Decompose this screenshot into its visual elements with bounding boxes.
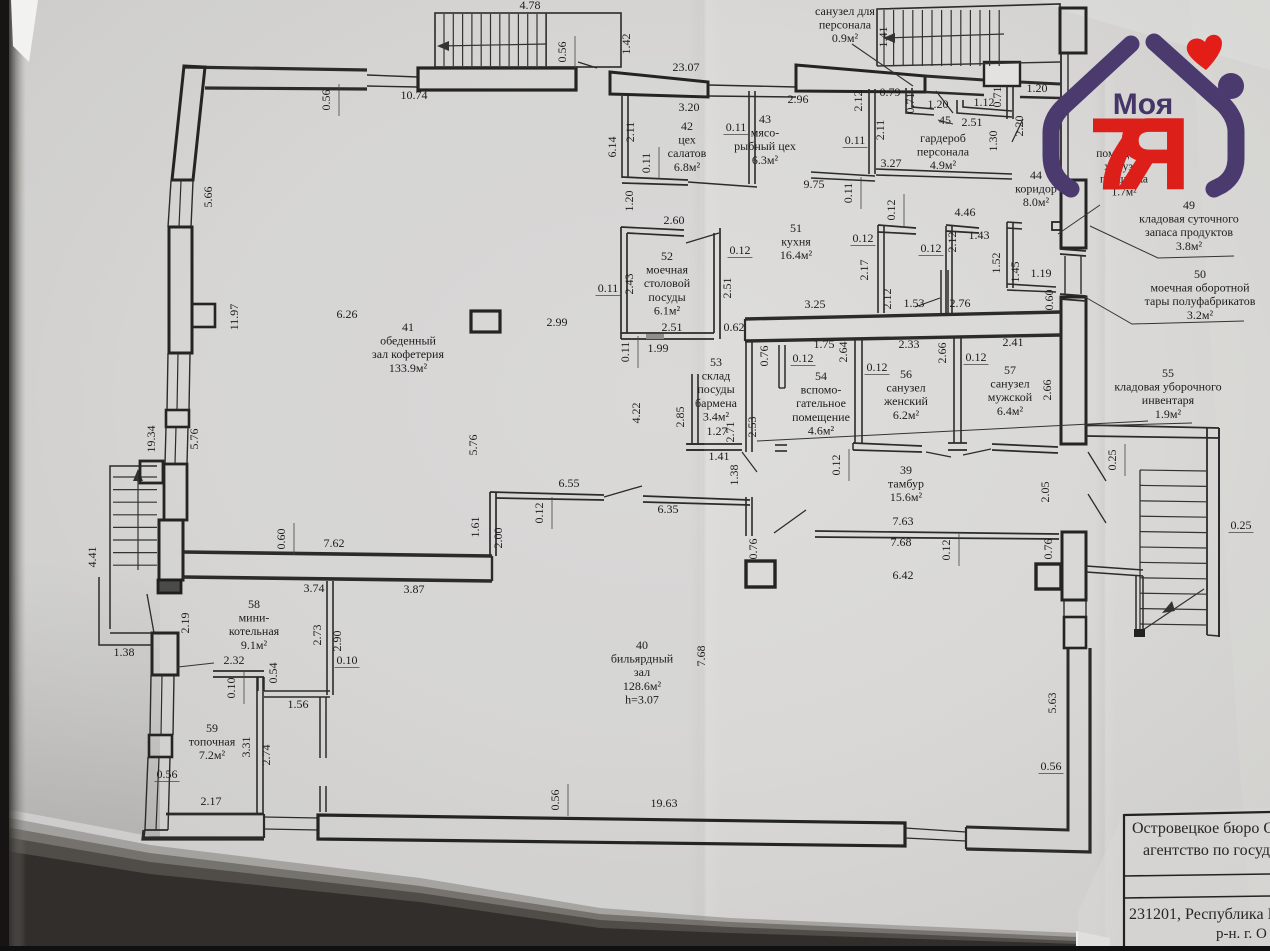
svg-text:0.10: 0.10 xyxy=(224,678,238,699)
svg-text:1.20: 1.20 xyxy=(622,191,636,212)
svg-text:4.41: 4.41 xyxy=(85,547,99,568)
svg-text:бармена: бармена xyxy=(695,396,738,410)
svg-text:0.12: 0.12 xyxy=(939,540,953,561)
svg-text:6.14: 6.14 xyxy=(605,137,619,158)
svg-text:0.71: 0.71 xyxy=(903,93,917,114)
svg-text:41: 41 xyxy=(402,320,414,334)
svg-text:44: 44 xyxy=(1030,168,1042,182)
svg-text:тары полуфабрикатов: тары полуфабрикатов xyxy=(1145,294,1256,308)
svg-text:посуды: посуды xyxy=(648,290,685,304)
svg-text:19.34: 19.34 xyxy=(144,426,158,453)
svg-text:2.76: 2.76 xyxy=(950,296,971,310)
svg-text:тамбур: тамбур xyxy=(888,477,924,491)
svg-text:7.63: 7.63 xyxy=(893,514,914,528)
svg-text:3.87: 3.87 xyxy=(404,582,425,596)
svg-text:2.11: 2.11 xyxy=(873,120,887,141)
svg-text:1.41: 1.41 xyxy=(709,449,730,463)
svg-text:0.56: 0.56 xyxy=(319,90,333,111)
svg-text:1.43: 1.43 xyxy=(969,228,990,242)
svg-text:4.9м²: 4.9м² xyxy=(930,158,957,172)
svg-text:11.97: 11.97 xyxy=(227,304,241,331)
svg-text:гательное: гательное xyxy=(796,396,846,410)
svg-text:2.66: 2.66 xyxy=(1040,380,1054,401)
svg-text:4.78: 4.78 xyxy=(520,0,541,12)
svg-text:6.2м²: 6.2м² xyxy=(893,408,920,422)
svg-text:зал: зал xyxy=(634,665,650,679)
svg-text:52: 52 xyxy=(661,249,673,263)
svg-text:1.99: 1.99 xyxy=(648,341,669,355)
svg-text:3.74: 3.74 xyxy=(304,581,325,595)
svg-text:7.68: 7.68 xyxy=(891,535,912,549)
svg-text:0.76: 0.76 xyxy=(746,539,760,560)
svg-text:2.11: 2.11 xyxy=(623,122,637,143)
svg-text:9.75: 9.75 xyxy=(804,177,825,191)
svg-text:6.26: 6.26 xyxy=(337,307,358,321)
svg-text:56: 56 xyxy=(900,367,912,381)
svg-text:0.11: 0.11 xyxy=(845,133,866,147)
svg-text:2.64: 2.64 xyxy=(836,342,850,363)
svg-text:0.56: 0.56 xyxy=(1041,759,1062,773)
svg-text:гардероб: гардероб xyxy=(920,131,966,145)
svg-text:40: 40 xyxy=(636,638,648,652)
svg-text:6.8м²: 6.8м² xyxy=(674,160,701,174)
svg-text:9.1м²: 9.1м² xyxy=(241,638,268,652)
svg-text:2.51: 2.51 xyxy=(662,320,683,334)
svg-text:помещение: помещение xyxy=(792,410,850,424)
svg-text:рыбный цех: рыбный цех xyxy=(734,139,796,153)
svg-text:5.66: 5.66 xyxy=(201,187,215,208)
svg-text:2.66: 2.66 xyxy=(935,343,949,364)
svg-text:3.8м²: 3.8м² xyxy=(1176,239,1203,253)
svg-text:2.60: 2.60 xyxy=(664,213,685,227)
svg-text:0.54: 0.54 xyxy=(266,663,280,684)
svg-text:2.99: 2.99 xyxy=(547,315,568,329)
svg-text:р-н. г. О: р-н. г. О xyxy=(1216,926,1267,942)
svg-text:6.55: 6.55 xyxy=(559,476,580,490)
svg-text:0.71: 0.71 xyxy=(990,87,1004,108)
svg-text:1.19: 1.19 xyxy=(1031,266,1052,280)
svg-text:склад: склад xyxy=(702,369,731,383)
svg-text:2.12: 2.12 xyxy=(851,91,865,112)
svg-text:8.0м²: 8.0м² xyxy=(1023,195,1050,209)
svg-text:128.6м²: 128.6м² xyxy=(623,679,662,693)
svg-text:4.6м²: 4.6м² xyxy=(808,423,835,437)
svg-text:2.17: 2.17 xyxy=(201,794,222,808)
svg-text:h=3.07: h=3.07 xyxy=(625,692,659,706)
svg-text:котельная: котельная xyxy=(229,624,280,638)
svg-text:1.38: 1.38 xyxy=(727,465,741,486)
svg-text:2.00: 2.00 xyxy=(491,528,505,549)
svg-text:2.51: 2.51 xyxy=(962,115,983,129)
svg-text:0.12: 0.12 xyxy=(532,503,546,524)
svg-text:0.56: 0.56 xyxy=(548,790,562,811)
svg-text:3.31: 3.31 xyxy=(239,737,253,758)
svg-text:58: 58 xyxy=(248,597,260,611)
svg-text:0.11: 0.11 xyxy=(618,342,632,363)
svg-text:мясо-: мясо- xyxy=(751,126,779,140)
svg-text:1.75: 1.75 xyxy=(814,337,835,351)
svg-text:0.56: 0.56 xyxy=(157,767,178,781)
svg-text:кладовая суточного: кладовая суточного xyxy=(1139,212,1239,226)
svg-text:0.25: 0.25 xyxy=(1231,518,1252,532)
svg-text:43: 43 xyxy=(759,112,771,126)
svg-text:персонала: персонала xyxy=(917,145,970,159)
svg-text:7.62: 7.62 xyxy=(324,536,345,550)
svg-text:2.74: 2.74 xyxy=(259,745,273,766)
svg-text:0.79: 0.79 xyxy=(880,85,901,99)
svg-text:2.17: 2.17 xyxy=(857,260,871,281)
svg-text:2.51: 2.51 xyxy=(720,278,734,299)
svg-text:2.20: 2.20 xyxy=(1012,116,1026,137)
svg-text:мужской: мужской xyxy=(988,390,1033,404)
svg-text:0.11: 0.11 xyxy=(841,183,855,204)
svg-text:15.6м²: 15.6м² xyxy=(890,490,923,504)
svg-text:1.42: 1.42 xyxy=(619,34,633,55)
svg-text:42: 42 xyxy=(681,119,693,133)
svg-text:0.76: 0.76 xyxy=(1041,539,1055,560)
svg-text:зал кофетерия: зал кофетерия xyxy=(372,347,444,361)
svg-text:2.05: 2.05 xyxy=(1038,482,1052,503)
svg-text:3.27: 3.27 xyxy=(881,156,902,170)
svg-text:0.76: 0.76 xyxy=(757,346,771,367)
svg-text:топочная: топочная xyxy=(189,735,236,749)
svg-text:2.33: 2.33 xyxy=(899,337,920,351)
svg-text:столовой: столовой xyxy=(644,276,691,290)
svg-text:2.19: 2.19 xyxy=(178,613,192,634)
svg-text:10.74: 10.74 xyxy=(401,88,428,102)
svg-text:0.62: 0.62 xyxy=(724,320,745,334)
svg-text:45: 45 xyxy=(939,113,951,127)
svg-text:обеденный: обеденный xyxy=(380,334,436,348)
svg-text:Островецкое бюро О: Островецкое бюро О xyxy=(1132,820,1270,837)
svg-text:57: 57 xyxy=(1004,363,1016,377)
svg-text:0.11: 0.11 xyxy=(598,281,619,295)
svg-text:2.90: 2.90 xyxy=(330,631,344,652)
svg-text:агентство по госуд: агентство по госуд xyxy=(1143,842,1270,859)
svg-text:0.60: 0.60 xyxy=(1042,290,1056,311)
svg-text:0.12: 0.12 xyxy=(853,231,874,245)
svg-text:133.9м²: 133.9м² xyxy=(389,361,428,375)
svg-text:женский: женский xyxy=(883,394,928,408)
svg-text:1.9м²: 1.9м² xyxy=(1155,407,1182,421)
svg-text:0.12: 0.12 xyxy=(829,455,843,476)
svg-text:59: 59 xyxy=(206,721,218,735)
svg-text:санузел: санузел xyxy=(886,381,925,395)
svg-text:0.25: 0.25 xyxy=(1105,450,1119,471)
svg-text:санузел: санузел xyxy=(990,377,1029,391)
svg-text:цех: цех xyxy=(678,133,696,147)
svg-text:посуды: посуды xyxy=(697,382,734,396)
svg-text:1.20: 1.20 xyxy=(928,97,949,111)
svg-text:6.42: 6.42 xyxy=(893,568,914,582)
svg-text:2.96: 2.96 xyxy=(788,92,809,106)
svg-text:кухня: кухня xyxy=(781,235,811,249)
svg-text:инвентаря: инвентаря xyxy=(1142,393,1195,407)
svg-text:7.68: 7.68 xyxy=(694,646,708,667)
svg-text:2.43: 2.43 xyxy=(622,274,636,295)
svg-text:3.4м²: 3.4м² xyxy=(703,409,730,423)
svg-text:2.73: 2.73 xyxy=(310,625,324,646)
svg-text:салатов: салатов xyxy=(668,146,707,160)
svg-text:0.12: 0.12 xyxy=(867,360,888,374)
svg-text:5.63: 5.63 xyxy=(1045,693,1059,714)
svg-text:5.76: 5.76 xyxy=(187,429,201,450)
svg-text:1.56: 1.56 xyxy=(288,697,309,711)
svg-text:кладовая уборочного: кладовая уборочного xyxy=(1114,380,1221,394)
svg-text:6.35: 6.35 xyxy=(658,502,679,516)
svg-text:2.71: 2.71 xyxy=(723,422,737,443)
svg-text:1.30: 1.30 xyxy=(986,131,1000,152)
svg-text:Я: Я xyxy=(1118,98,1189,209)
svg-text:2.85: 2.85 xyxy=(673,407,687,428)
svg-text:0.12: 0.12 xyxy=(884,200,898,221)
svg-text:0.12: 0.12 xyxy=(966,350,987,364)
svg-text:0.11: 0.11 xyxy=(726,120,747,134)
svg-text:53: 53 xyxy=(710,355,722,369)
svg-text:2.12: 2.12 xyxy=(945,232,959,253)
svg-text:6.4м²: 6.4м² xyxy=(997,404,1024,418)
svg-text:бильярдный: бильярдный xyxy=(611,652,674,666)
svg-text:16.4м²: 16.4м² xyxy=(780,248,813,262)
svg-text:санузел для: санузел для xyxy=(815,4,875,18)
svg-text:моечная оборотной: моечная оборотной xyxy=(1150,281,1250,295)
svg-text:5.76: 5.76 xyxy=(466,435,480,456)
svg-text:вспомо-: вспомо- xyxy=(801,383,842,397)
svg-text:39: 39 xyxy=(900,463,912,477)
svg-text:0.60: 0.60 xyxy=(274,529,288,550)
svg-text:1.45: 1.45 xyxy=(1008,262,1022,283)
svg-text:моечная: моечная xyxy=(646,263,689,277)
svg-text:19.63: 19.63 xyxy=(651,796,678,810)
svg-text:2.53: 2.53 xyxy=(745,417,759,438)
svg-text:54: 54 xyxy=(815,369,827,383)
svg-text:персонала: персонала xyxy=(819,18,872,32)
svg-text:мини-: мини- xyxy=(239,611,270,625)
svg-text:55: 55 xyxy=(1162,366,1174,380)
svg-text:3.2м²: 3.2м² xyxy=(1187,308,1214,322)
svg-text:0.56: 0.56 xyxy=(555,42,569,63)
svg-text:1.61: 1.61 xyxy=(468,517,482,538)
svg-text:3.25: 3.25 xyxy=(805,297,826,311)
svg-text:2.32: 2.32 xyxy=(224,653,245,667)
svg-text:0.12: 0.12 xyxy=(730,243,751,257)
svg-text:7.2м²: 7.2м² xyxy=(199,748,226,762)
svg-text:4.22: 4.22 xyxy=(629,403,643,424)
svg-text:0.11: 0.11 xyxy=(639,153,653,174)
svg-text:1.53: 1.53 xyxy=(904,296,925,310)
svg-text:6.1м²: 6.1м² xyxy=(654,303,681,317)
svg-text:1.41: 1.41 xyxy=(876,27,890,48)
svg-text:23.07: 23.07 xyxy=(673,60,700,74)
svg-text:51: 51 xyxy=(790,221,802,235)
svg-text:231201, Республика Б: 231201, Республика Б xyxy=(1129,906,1270,923)
svg-text:4.46: 4.46 xyxy=(955,205,976,219)
svg-text:0.10: 0.10 xyxy=(337,653,358,667)
svg-text:коридор: коридор xyxy=(1015,182,1057,196)
svg-text:1.38: 1.38 xyxy=(114,645,135,659)
svg-text:50: 50 xyxy=(1194,267,1206,281)
svg-text:3.20: 3.20 xyxy=(679,100,700,114)
svg-text:2.12: 2.12 xyxy=(880,289,894,310)
svg-text:1.20: 1.20 xyxy=(1027,81,1048,95)
svg-text:0.12: 0.12 xyxy=(921,241,942,255)
svg-text:1.52: 1.52 xyxy=(989,253,1003,274)
svg-text:6.3м²: 6.3м² xyxy=(752,153,779,167)
svg-text:2.41: 2.41 xyxy=(1003,335,1024,349)
svg-text:0.12: 0.12 xyxy=(793,351,814,365)
svg-text:запаса продуктов: запаса продуктов xyxy=(1145,225,1233,239)
svg-text:0.9м²: 0.9м² xyxy=(832,31,859,45)
